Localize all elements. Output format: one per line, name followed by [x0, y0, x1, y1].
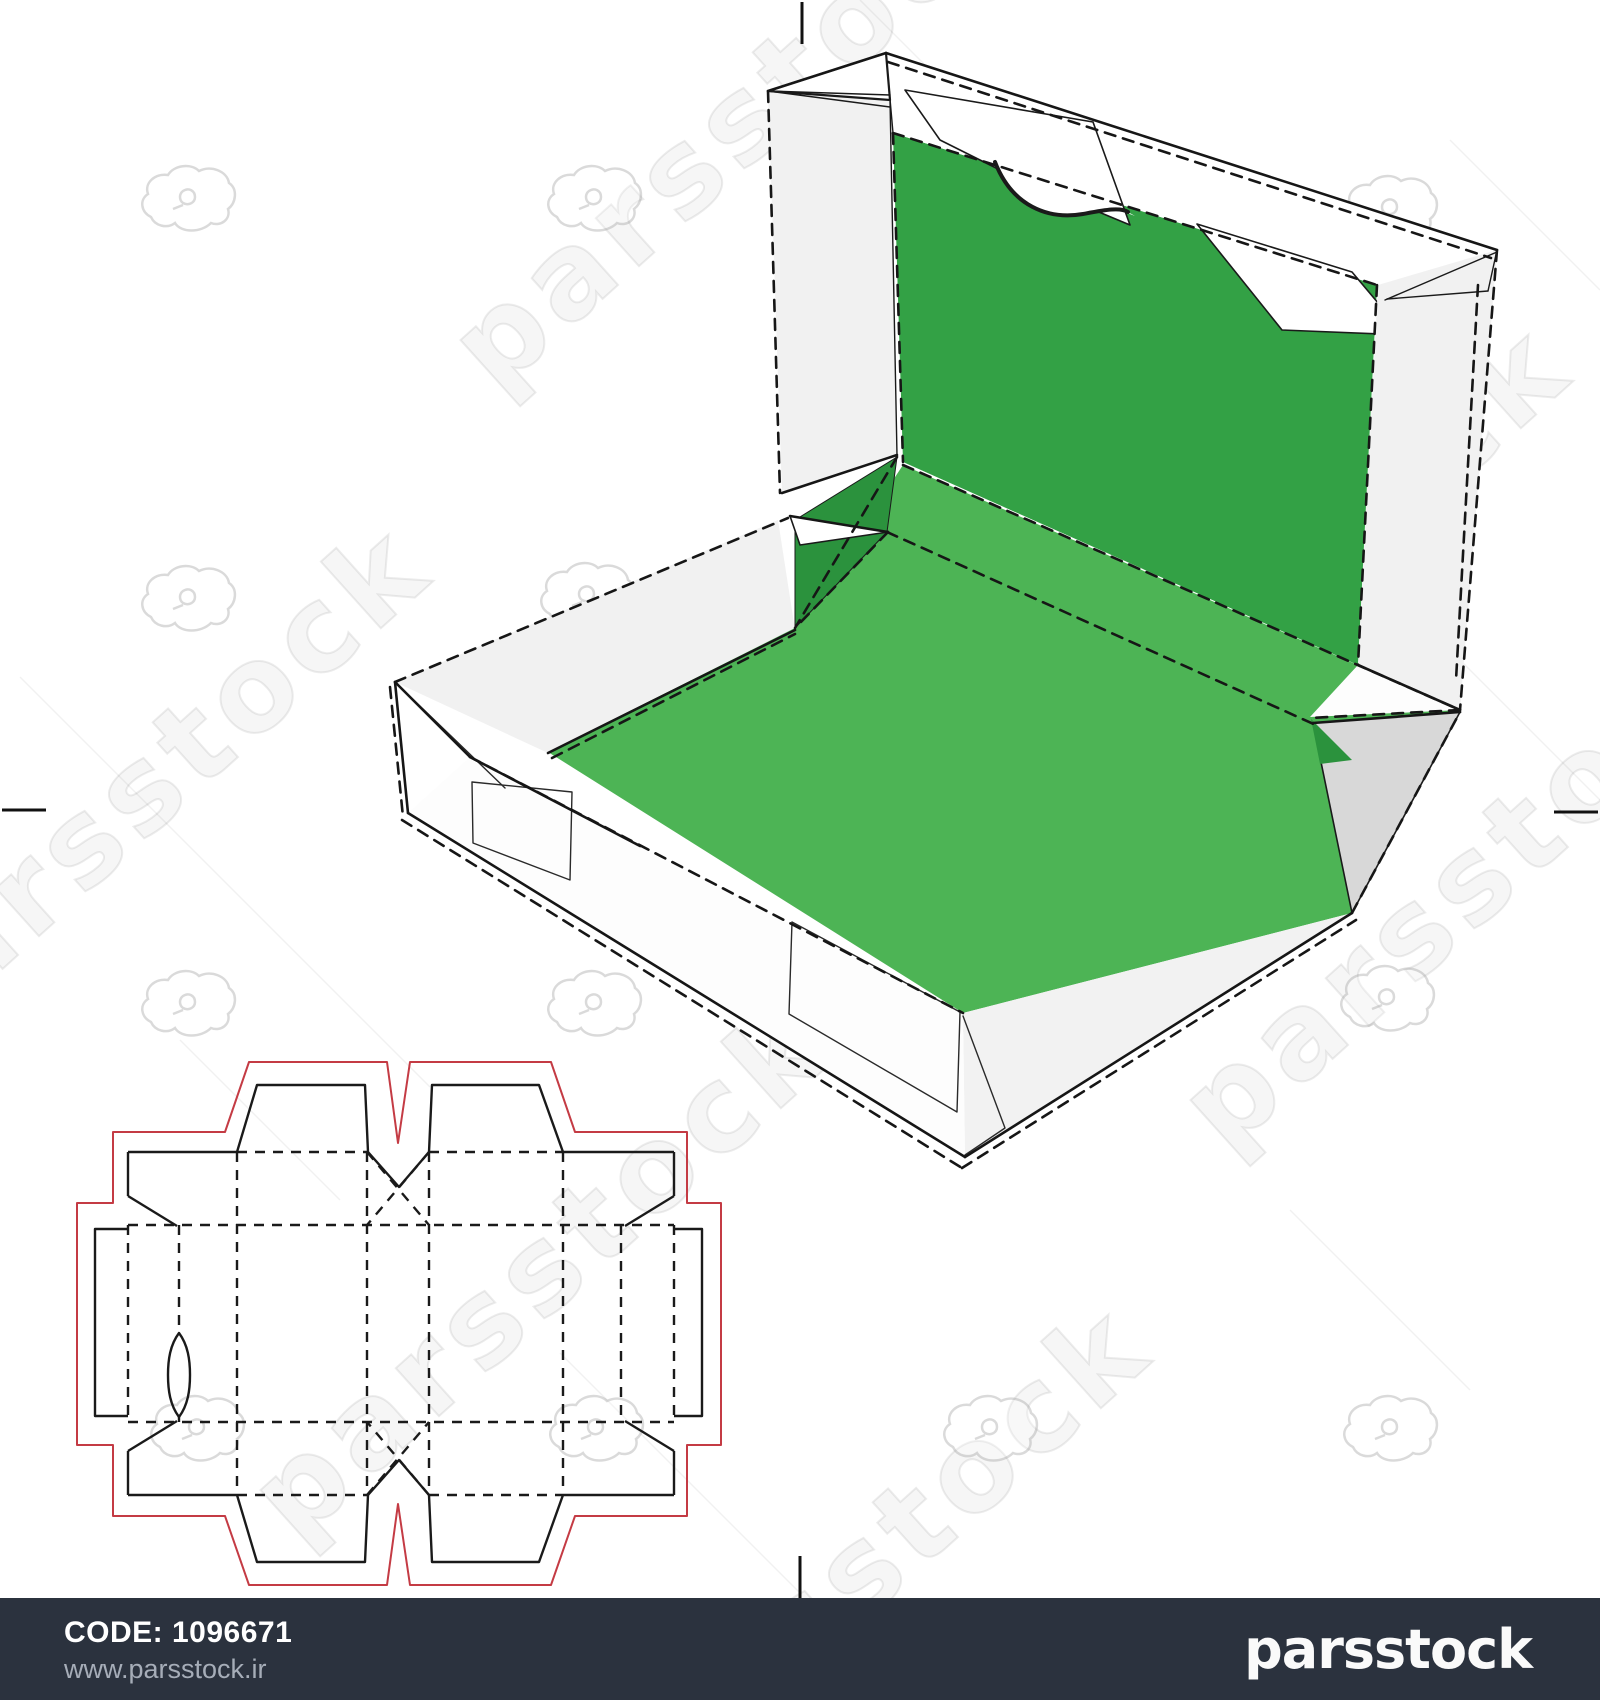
- box-lid-side-panel: [768, 91, 897, 493]
- stock-image-page: parsstock parsstock parsstock parsstock …: [0, 0, 1600, 1700]
- website-url: www.parsstock.ir: [64, 1654, 267, 1685]
- dieline-bleed-outline: [77, 1062, 721, 1585]
- image-code: CODE: 1096671: [64, 1616, 292, 1650]
- footer-bar: CODE: 1096671 www.parsstock.ir parsstock: [0, 1598, 1600, 1700]
- dieline-cut-lines: [95, 1085, 702, 1562]
- parsstock-logo: parsstock: [1244, 1618, 1532, 1681]
- box-lid-right-band: [1358, 250, 1497, 710]
- box-dieline-artwork: [0, 0, 1600, 1700]
- dieline-template: [77, 1062, 721, 1585]
